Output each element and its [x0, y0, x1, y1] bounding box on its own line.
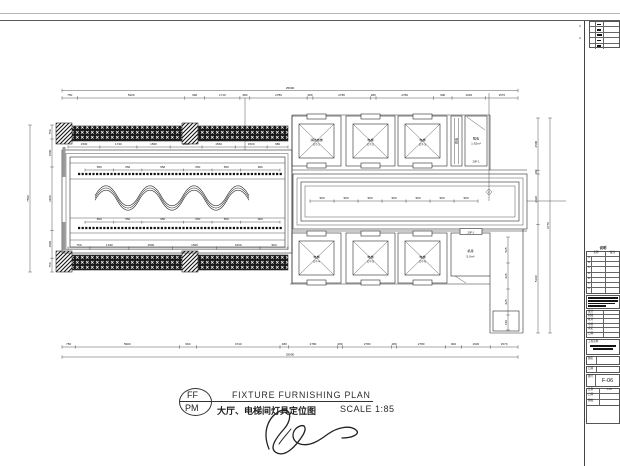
dim-label: 1340 — [106, 243, 113, 247]
dim-label: 1500 — [48, 149, 52, 156]
dim-label: 2420 — [534, 196, 538, 203]
dim-label: 950 — [415, 196, 420, 200]
dim-label: 960 — [271, 243, 276, 247]
rev-side-label: 4 — [579, 25, 581, 28]
dim-label: 960 — [185, 342, 190, 346]
tb-name-row: 图名 — [586, 356, 620, 365]
tb-scale-rows: 比例 1:85 日期 图幅 — [586, 388, 620, 406]
dim-label: 900 — [258, 165, 263, 169]
callout-number: 2 — [488, 190, 490, 194]
dim-label: 1630 — [472, 342, 479, 346]
dim-label: 650 — [224, 217, 229, 221]
dim-label: 950 — [343, 196, 348, 200]
title-block: 4 3 说明 名称 备注 A B C D E F G — [584, 21, 620, 466]
dim-label: 2780 — [310, 342, 317, 346]
dim-label: 1570 — [501, 342, 508, 346]
dim-label: 525 — [504, 247, 508, 252]
dim-label: 650 — [224, 165, 229, 169]
tb-field-value — [604, 311, 619, 314]
dim-label: 480 — [282, 342, 287, 346]
dim-label: 3400 — [48, 195, 52, 202]
dim-label: 5200 — [128, 93, 135, 97]
room-number: DT-3 — [419, 143, 426, 147]
dim-label: 2780 — [275, 93, 282, 97]
dim-label: 1570 — [498, 93, 505, 97]
room-label: 电梯 — [367, 254, 373, 259]
dim-label: 5900 — [124, 342, 131, 346]
wave-ceiling-feature — [95, 186, 249, 210]
dim-label: 625 — [504, 273, 508, 278]
room-label: 强电 — [473, 136, 479, 141]
hall-ceiling — [62, 147, 292, 253]
dim-label: 480 — [242, 93, 247, 97]
dim-label: 7560 — [26, 195, 30, 202]
dim-label: 650 — [125, 217, 130, 221]
dim-label: 1710 — [219, 93, 226, 97]
stamp-label-pm: PM — [185, 403, 199, 413]
dim-label: 750 — [48, 129, 52, 134]
dim-label: 650 — [97, 217, 102, 221]
dim-label: 1500 — [191, 243, 198, 247]
plan-title: FIXTURE FURNISHING PLAN — [232, 390, 371, 400]
hall-bottom-band — [56, 251, 288, 272]
room-area: 1.62m² — [471, 142, 481, 146]
room-number: DT-2 — [367, 143, 374, 147]
tb-field-value — [604, 333, 619, 337]
dim-label: 1560 — [150, 142, 157, 146]
stamp-label-ff: FF — [187, 390, 198, 400]
dim-label: 1500 — [81, 142, 88, 146]
dim-label: 950 — [463, 196, 468, 200]
dim-label: 280 — [307, 93, 312, 97]
dim-label: 1500 — [147, 243, 154, 247]
dim-label: 280 — [392, 342, 397, 346]
room-tag: 20F-1 — [472, 160, 480, 164]
dim-label: 650 — [97, 165, 102, 169]
tb-col-note: 备注 — [606, 252, 619, 256]
dim-label: 2780 — [401, 93, 408, 97]
room-label: 电梯 — [367, 137, 373, 142]
tb-number-block: 图号 F-06 — [586, 374, 620, 387]
dim-label: 750 — [76, 243, 81, 247]
plan-linework — [28, 89, 566, 359]
tb-section-label: 说明 — [586, 245, 620, 250]
dim-label: 2780 — [338, 93, 345, 97]
tb-notes-block — [586, 295, 620, 308]
dim-label: 950 — [439, 196, 444, 200]
tb-misc-row: 日期 — [586, 366, 620, 373]
drawing-sheet: 25690 750 5200 960 1710 480 2780 280 278… — [0, 0, 620, 466]
tb-project-label: 工程名称 — [588, 341, 618, 344]
dim-label: 1560 — [215, 142, 222, 146]
dim-label: 2780 — [364, 342, 371, 346]
dim-label: 1500 — [48, 241, 52, 248]
dim-label: 25690 — [286, 352, 295, 356]
dim-label: 950 — [391, 196, 396, 200]
dim-label: 900 — [258, 217, 263, 221]
dim-label: 180 — [534, 169, 538, 174]
room-area: 5.0m² — [467, 255, 475, 259]
dim-label: 750 — [67, 93, 72, 97]
rev-side-label: 3 — [579, 37, 581, 40]
dim-label: 950 — [160, 217, 165, 221]
tb-field-value — [604, 315, 619, 318]
dim-label: 4740 — [235, 342, 242, 346]
tb-fields-table: 设计 制图 校对 审核 审定 日期 — [586, 310, 620, 338]
dim-label: 1500 — [248, 142, 255, 146]
lobby-ceiling — [293, 174, 527, 229]
tb-scale-value: 1:85 — [600, 389, 619, 393]
dim-label: 960 — [192, 93, 197, 97]
tb-field-value — [604, 324, 619, 327]
tb-empty-block — [586, 406, 620, 424]
room-label: 弱电 — [454, 138, 459, 144]
room-label: 电梯 — [419, 137, 425, 142]
dim-label: 750 — [66, 342, 71, 346]
dim-label: 900 — [451, 342, 456, 346]
dim-label: 900 — [440, 93, 445, 97]
dim-label: 2500 — [534, 140, 538, 147]
dim-label: 9770 — [546, 222, 550, 229]
dim-label: 980 — [275, 142, 280, 146]
room-number: DT-4 — [313, 260, 320, 264]
dim-label: 280 — [371, 93, 376, 97]
dim-label: 650 — [125, 165, 130, 169]
hall-top-band — [56, 123, 288, 144]
room-number: DT-6 — [419, 260, 426, 264]
drawing-number: F-06 — [596, 375, 619, 386]
tb-field-label: 日期 — [587, 333, 604, 337]
plan-scale: SCALE 1:85 — [340, 404, 395, 414]
tb-legend-table: 名称 备注 A B C D E F G — [586, 251, 620, 294]
tb-sheet-label: 图幅 — [587, 400, 600, 405]
dim-label: 1630 — [465, 93, 472, 97]
room-number: DT-5 — [367, 260, 374, 264]
tb-field-value — [604, 319, 619, 322]
room-tag: 20F-1 — [467, 230, 475, 234]
dim-label: 950 — [319, 196, 324, 200]
dim-label: 1500 — [183, 142, 190, 146]
room-label: 消防电梯 — [310, 137, 322, 142]
room-label: 电梯 — [313, 254, 319, 259]
dim-label: 650 — [195, 165, 200, 169]
revision-table — [589, 21, 620, 48]
dim-label: 5190 — [534, 275, 538, 282]
dim-label: 150 — [504, 320, 508, 325]
dim-label: 625 — [504, 299, 508, 304]
room-number: DT-1 — [313, 143, 320, 147]
plan-subtitle: 大厅、电梯间灯具定位图 — [217, 404, 316, 417]
dim-label: 950 — [367, 196, 372, 200]
dim-label: 1740 — [115, 142, 122, 146]
tb-number-label: 图号 — [587, 375, 596, 386]
dim-label: 750 — [48, 262, 52, 267]
tb-name-label: 图名 — [587, 357, 597, 364]
dim-label: 280 — [337, 342, 342, 346]
title-block-lower: 说明 名称 备注 A B C D E F G 设 — [586, 245, 620, 424]
room-label: 机房 — [467, 248, 473, 253]
dim-label: 1500 — [235, 243, 242, 247]
room-label: 电梯 — [419, 254, 425, 259]
tb-date-label: 日期 — [587, 367, 597, 372]
dim-label: 25690 — [286, 86, 295, 90]
dim-label: 950 — [160, 165, 165, 169]
tb-field-value — [604, 328, 619, 331]
dim-label: 2780 — [418, 342, 425, 346]
elevator-block-frame — [290, 115, 527, 333]
tb-project-block: 工程名称 — [586, 339, 620, 355]
dim-label: 650 — [195, 217, 200, 221]
